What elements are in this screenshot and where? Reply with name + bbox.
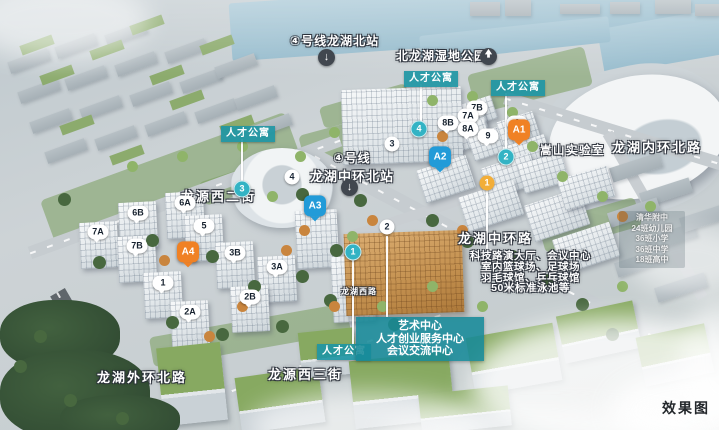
road-name-label: 龙湖西路 (341, 286, 377, 297)
school-note-line: 36班中学 (619, 245, 685, 256)
road-name-label: 龙湖外环北路 (97, 367, 187, 386)
school-note-line: 清华附中 (619, 213, 685, 224)
number-marker: 3 (234, 181, 251, 198)
block-pin: A2 (429, 146, 451, 167)
building-badge: 2B (240, 290, 261, 305)
leader-line (420, 84, 422, 122)
building-badge: 6A (175, 196, 196, 211)
talent-apartment-label: 人才公寓 (491, 80, 545, 96)
school-note-line: 18班高中 (619, 255, 685, 266)
school-note-line: 36班小学 (619, 234, 685, 245)
building-badge: 1 (153, 276, 174, 291)
road-name-label: 龙湖内环北路 (612, 137, 702, 156)
facility-note-line: 室内篮球场、足球场 (408, 262, 653, 273)
school-note-line: 24班幼儿园 (619, 224, 685, 235)
number-marker: 2 (380, 220, 395, 235)
number-marker: 1 (480, 176, 495, 191)
building-badge: 8B (438, 116, 459, 131)
station-line-text: ④号线 (283, 149, 421, 166)
building-badge: 8A (458, 122, 479, 137)
art-note-line: 人才创业服务中心 (356, 333, 484, 346)
building-badge: 7A (88, 225, 109, 240)
art-center-note: 艺术中心 人才创业服务中心 会议交流中心 (356, 317, 484, 361)
building-badge: 2A (180, 305, 201, 320)
road-name-label: 龙源西三街 (268, 364, 343, 383)
facility-note-line: 50米标准泳池等 (408, 283, 653, 294)
leader-line (241, 139, 243, 182)
building-badge: 7B (127, 239, 148, 254)
subway-entrance-arrow-icon: ↓ (318, 49, 335, 66)
campus-aerial-rendering: ④号线龙湖北站 ↓ 北龙湖湿地公园 ④号线 龙湖中环北站 ↓ 嵩山实验室 科技路… (0, 0, 719, 430)
talent-apartment-label: 人才公寓 (221, 126, 275, 142)
building-badge: 6B (128, 206, 149, 221)
building-badge: 3B (225, 246, 246, 261)
number-marker: 2 (498, 149, 515, 166)
number-marker: 4 (285, 170, 300, 185)
number-marker: 4 (411, 121, 428, 138)
school-note: 清华附中 24班幼儿园 36班小学 36班中学 18班高中 (619, 211, 685, 268)
block-pin: A1 (508, 119, 530, 140)
facility-note: 科技路演大厅、会议中心 室内篮球场、足球场 羽毛球馆、乒乓球馆 50米标准泳池等 (408, 251, 653, 294)
render-type-tag: 效果图 (662, 398, 710, 418)
art-note-line: 艺术中心 (356, 320, 484, 333)
songshan-lab-label: 嵩山实验室 (540, 142, 605, 158)
building-badge: 3A (267, 260, 288, 275)
wetland-park-label: 北龙湖湿地公园 (396, 47, 487, 64)
building-badge: 5 (194, 219, 215, 234)
annotation-overlay: ④号线龙湖北站 ↓ 北龙湖湿地公园 ④号线 龙湖中环北站 ↓ 嵩山实验室 科技路… (0, 0, 719, 430)
leader-line (386, 236, 388, 317)
block-pin: A3 (304, 195, 326, 216)
road-name-label: 龙湖中环路 (458, 228, 533, 247)
art-note-line: 会议交流中心 (356, 345, 484, 358)
number-marker: 3 (385, 137, 400, 152)
building-badge: 9 (478, 129, 499, 144)
subway-station-label-longhu-north: ④号线龙湖北站 (290, 32, 379, 49)
number-marker: 1 (345, 244, 362, 261)
talent-apartment-label: 人才公寓 (404, 71, 458, 87)
block-pin: A4 (177, 241, 199, 262)
park-tree-icon (480, 48, 497, 65)
subway-entrance-arrow-icon: ↓ (341, 179, 358, 196)
leader-line (352, 259, 354, 344)
